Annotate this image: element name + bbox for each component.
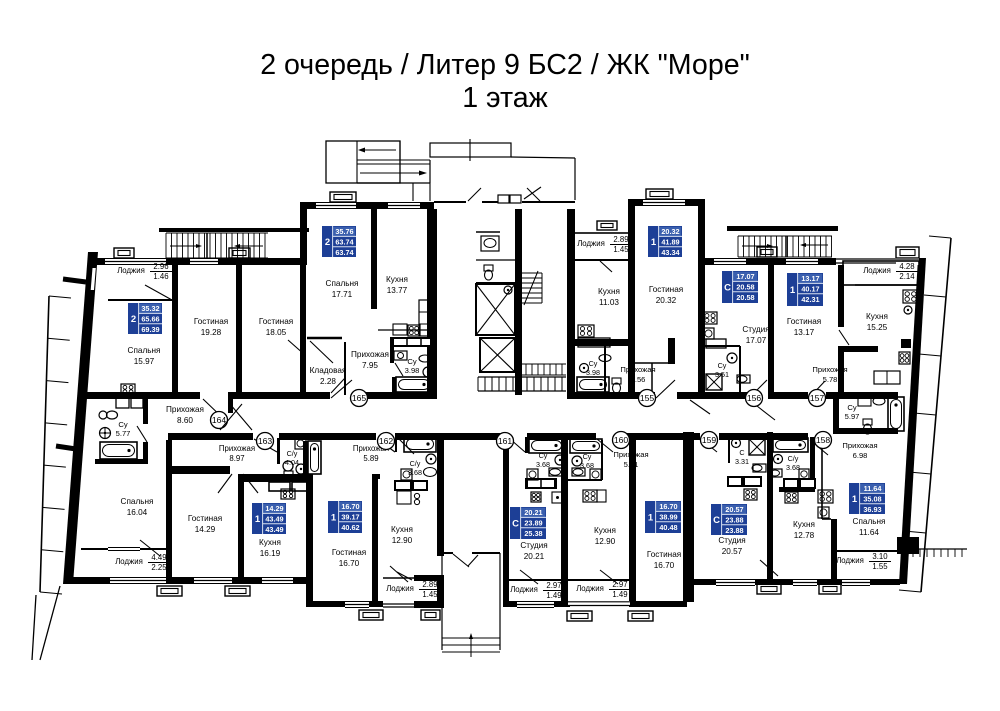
svg-text:160: 160 bbox=[614, 435, 629, 445]
svg-text:11.64: 11.64 bbox=[864, 484, 883, 493]
svg-text:Лоджия: Лоджия bbox=[386, 584, 414, 593]
svg-text:6.98: 6.98 bbox=[853, 451, 868, 460]
svg-text:Су: Су bbox=[718, 361, 727, 370]
svg-text:Су: Су bbox=[589, 359, 598, 368]
svg-text:1.45: 1.45 bbox=[613, 245, 629, 254]
svg-text:25.38: 25.38 bbox=[524, 529, 542, 538]
svg-text:40.48: 40.48 bbox=[659, 523, 677, 532]
svg-text:11.03: 11.03 bbox=[599, 298, 619, 307]
svg-text:23.89: 23.89 bbox=[524, 518, 542, 527]
svg-text:17.07: 17.07 bbox=[746, 336, 767, 345]
svg-text:16.70: 16.70 bbox=[659, 502, 677, 511]
svg-text:2.25: 2.25 bbox=[151, 563, 167, 572]
svg-text:2.14: 2.14 bbox=[899, 272, 915, 281]
svg-text:4.04: 4.04 bbox=[285, 458, 299, 467]
svg-text:Гостиная: Гостиная bbox=[194, 317, 228, 326]
svg-text:1.55: 1.55 bbox=[872, 562, 888, 571]
svg-text:39.17: 39.17 bbox=[341, 512, 359, 521]
svg-text:2.97: 2.97 bbox=[546, 581, 561, 590]
svg-text:Студия: Студия bbox=[520, 541, 547, 550]
svg-text:Кухня: Кухня bbox=[793, 520, 815, 529]
svg-text:Су: Су bbox=[539, 451, 548, 460]
svg-text:63.74: 63.74 bbox=[335, 248, 354, 257]
svg-text:16.70: 16.70 bbox=[654, 561, 675, 570]
svg-text:23.88: 23.88 bbox=[725, 515, 743, 524]
svg-text:20.57: 20.57 bbox=[725, 505, 743, 514]
svg-text:3.98: 3.98 bbox=[586, 368, 600, 377]
svg-text:155: 155 bbox=[640, 393, 655, 403]
svg-text:157: 157 bbox=[810, 393, 825, 403]
svg-text:Кухня: Кухня bbox=[391, 525, 413, 534]
svg-text:14.29: 14.29 bbox=[265, 504, 283, 513]
svg-text:Прихожая: Прихожая bbox=[166, 405, 204, 414]
svg-text:19.28: 19.28 bbox=[201, 328, 222, 337]
svg-text:41.89: 41.89 bbox=[661, 237, 679, 246]
svg-text:Гостиная: Гостиная bbox=[649, 285, 683, 294]
svg-text:20.21: 20.21 bbox=[524, 552, 545, 561]
svg-text:Спальня: Спальня bbox=[326, 279, 359, 288]
svg-text:20.58: 20.58 bbox=[736, 293, 754, 302]
svg-text:Кухня: Кухня bbox=[866, 312, 888, 321]
svg-text:Студия: Студия bbox=[742, 325, 769, 334]
svg-text:1: 1 bbox=[648, 513, 654, 524]
svg-text:20.32: 20.32 bbox=[656, 296, 677, 305]
svg-text:1.45: 1.45 bbox=[422, 590, 438, 599]
svg-text:163: 163 bbox=[258, 436, 273, 446]
svg-text:2.96: 2.96 bbox=[153, 262, 168, 271]
svg-text:С: С bbox=[739, 448, 744, 457]
svg-text:158: 158 bbox=[816, 435, 831, 445]
svg-text:2: 2 bbox=[325, 237, 330, 248]
svg-text:16.70: 16.70 bbox=[339, 559, 360, 568]
svg-text:5.97: 5.97 bbox=[845, 412, 860, 421]
svg-text:С/у: С/у bbox=[788, 454, 799, 463]
svg-text:5.77: 5.77 bbox=[116, 429, 131, 438]
svg-text:Гостиная: Гостиная bbox=[259, 317, 293, 326]
svg-text:18.05: 18.05 bbox=[266, 328, 287, 337]
svg-text:Прихожая: Прихожая bbox=[351, 350, 389, 359]
svg-text:23.88: 23.88 bbox=[725, 526, 743, 535]
svg-text:Прихожая: Прихожая bbox=[842, 441, 877, 450]
svg-text:11.64: 11.64 bbox=[859, 528, 879, 537]
svg-text:13.77: 13.77 bbox=[387, 286, 408, 295]
svg-text:12.90: 12.90 bbox=[595, 537, 616, 546]
svg-text:162: 162 bbox=[379, 436, 394, 446]
svg-text:Прихожая: Прихожая bbox=[613, 450, 648, 459]
svg-text:Су: Су bbox=[118, 420, 127, 429]
svg-text:3.68: 3.68 bbox=[786, 463, 800, 472]
svg-text:3.10: 3.10 bbox=[872, 552, 888, 561]
svg-text:Спальня: Спальня bbox=[128, 346, 161, 355]
svg-text:8.97: 8.97 bbox=[229, 454, 244, 463]
svg-text:Лоджия: Лоджия bbox=[576, 584, 604, 593]
svg-text:40.17: 40.17 bbox=[801, 284, 819, 293]
svg-text:12.90: 12.90 bbox=[392, 536, 413, 545]
svg-text:2.89: 2.89 bbox=[422, 580, 437, 589]
svg-text:1: 1 bbox=[651, 237, 657, 248]
svg-text:156: 156 bbox=[747, 393, 762, 403]
svg-text:С: С bbox=[713, 515, 720, 526]
svg-text:43.49: 43.49 bbox=[265, 514, 283, 523]
svg-text:43.49: 43.49 bbox=[265, 525, 283, 534]
svg-text:35.76: 35.76 bbox=[335, 227, 353, 236]
svg-text:Гостиная: Гостиная bbox=[188, 514, 222, 523]
svg-text:Су: Су bbox=[847, 403, 856, 412]
svg-text:13.17: 13.17 bbox=[794, 328, 815, 337]
svg-text:Спальня: Спальня bbox=[853, 517, 886, 526]
svg-text:15.25: 15.25 bbox=[867, 323, 888, 332]
svg-text:Лоджия: Лоджия bbox=[510, 585, 538, 594]
svg-text:С: С bbox=[724, 283, 731, 294]
svg-text:Кухня: Кухня bbox=[598, 287, 620, 296]
svg-text:35.08: 35.08 bbox=[863, 494, 881, 503]
svg-text:2.89: 2.89 bbox=[613, 235, 628, 244]
svg-text:Студия: Студия bbox=[718, 536, 745, 545]
svg-text:3.68: 3.68 bbox=[408, 468, 422, 477]
svg-text:Прихожая: Прихожая bbox=[620, 365, 655, 374]
svg-text:3.31: 3.31 bbox=[735, 457, 749, 466]
svg-text:16.04: 16.04 bbox=[127, 508, 148, 517]
svg-text:40.62: 40.62 bbox=[341, 523, 359, 532]
svg-text:Кухня: Кухня bbox=[386, 275, 408, 284]
svg-text:Лоджия: Лоджия bbox=[115, 557, 143, 566]
svg-text:165: 165 bbox=[352, 393, 367, 403]
svg-text:42.31: 42.31 bbox=[801, 295, 819, 304]
svg-text:8.60: 8.60 bbox=[177, 416, 193, 425]
svg-text:2.28: 2.28 bbox=[320, 377, 336, 386]
svg-text:1: 1 bbox=[331, 513, 337, 524]
svg-text:С: С bbox=[512, 519, 519, 530]
svg-text:43.34: 43.34 bbox=[661, 248, 680, 257]
svg-text:Гостиная: Гостиная bbox=[787, 317, 821, 326]
svg-text:20.57: 20.57 bbox=[722, 547, 743, 556]
svg-text:1: 1 bbox=[790, 285, 796, 296]
svg-text:Прихожая: Прихожая bbox=[812, 365, 847, 374]
svg-text:3.68: 3.68 bbox=[580, 461, 594, 470]
svg-text:3.98: 3.98 bbox=[405, 366, 420, 375]
svg-text:161: 161 bbox=[498, 436, 513, 446]
svg-text:Лоджия: Лоджия bbox=[836, 556, 864, 565]
svg-text:Су: Су bbox=[583, 452, 592, 461]
svg-text:Лоджия: Лоджия bbox=[117, 266, 145, 275]
svg-text:16.19: 16.19 bbox=[260, 549, 281, 558]
svg-text:20.32: 20.32 bbox=[661, 227, 679, 236]
svg-text:16.70: 16.70 bbox=[341, 502, 359, 511]
svg-text:7.95: 7.95 bbox=[362, 361, 378, 370]
svg-text:1.46: 1.46 bbox=[153, 272, 168, 281]
svg-text:38.99: 38.99 bbox=[659, 512, 677, 521]
svg-text:3.51: 3.51 bbox=[715, 370, 729, 379]
svg-text:Кухня: Кухня bbox=[259, 538, 281, 547]
svg-text:12.78: 12.78 bbox=[794, 531, 815, 540]
svg-text:5.71: 5.71 bbox=[624, 460, 639, 469]
svg-text:20.21: 20.21 bbox=[524, 508, 542, 517]
svg-text:1: 1 bbox=[852, 494, 858, 505]
svg-text:17.07: 17.07 bbox=[736, 272, 754, 281]
svg-text:С/у: С/у bbox=[410, 459, 421, 468]
svg-text:20.58: 20.58 bbox=[736, 282, 754, 291]
svg-text:5.89: 5.89 bbox=[363, 454, 378, 463]
svg-text:Спальня: Спальня bbox=[121, 497, 154, 506]
svg-text:159: 159 bbox=[702, 435, 717, 445]
svg-text:4.28: 4.28 bbox=[899, 262, 914, 271]
svg-text:Прихожая: Прихожая bbox=[219, 444, 255, 453]
svg-text:Лоджия: Лоджия bbox=[577, 239, 605, 248]
svg-text:6.56: 6.56 bbox=[631, 375, 646, 384]
svg-text:5.78: 5.78 bbox=[823, 375, 838, 384]
svg-text:15.97: 15.97 bbox=[134, 357, 155, 366]
svg-text:Гостиная: Гостиная bbox=[647, 550, 681, 559]
svg-text:2 очередь / Литер 9 БС2 / ЖК ": 2 очередь / Литер 9 БС2 / ЖК "Море" bbox=[260, 49, 750, 81]
svg-text:1: 1 bbox=[255, 514, 261, 525]
svg-text:Лоджия: Лоджия bbox=[863, 266, 891, 275]
svg-text:Су: Су bbox=[407, 357, 416, 366]
svg-text:69.39: 69.39 bbox=[141, 325, 159, 334]
svg-text:13.17: 13.17 bbox=[801, 274, 819, 283]
svg-text:14.29: 14.29 bbox=[195, 525, 216, 534]
svg-text:3.68: 3.68 bbox=[536, 460, 550, 469]
svg-text:65.66: 65.66 bbox=[141, 314, 159, 323]
svg-text:17.71: 17.71 bbox=[332, 290, 353, 299]
svg-text:36.93: 36.93 bbox=[863, 505, 881, 514]
svg-text:4.49: 4.49 bbox=[151, 553, 166, 562]
svg-text:1 этаж: 1 этаж bbox=[462, 82, 548, 114]
svg-text:63.74: 63.74 bbox=[335, 237, 354, 246]
svg-text:2: 2 bbox=[131, 314, 136, 325]
svg-text:164: 164 bbox=[212, 415, 227, 425]
svg-text:Гостиная: Гостиная bbox=[332, 548, 366, 557]
svg-text:1.49: 1.49 bbox=[546, 591, 561, 600]
svg-text:Кухня: Кухня bbox=[594, 526, 616, 535]
svg-text:Кладовая: Кладовая bbox=[310, 366, 347, 375]
svg-text:1.49: 1.49 bbox=[612, 590, 627, 599]
svg-text:С/у: С/у bbox=[287, 449, 298, 458]
svg-text:35.32: 35.32 bbox=[141, 304, 159, 313]
